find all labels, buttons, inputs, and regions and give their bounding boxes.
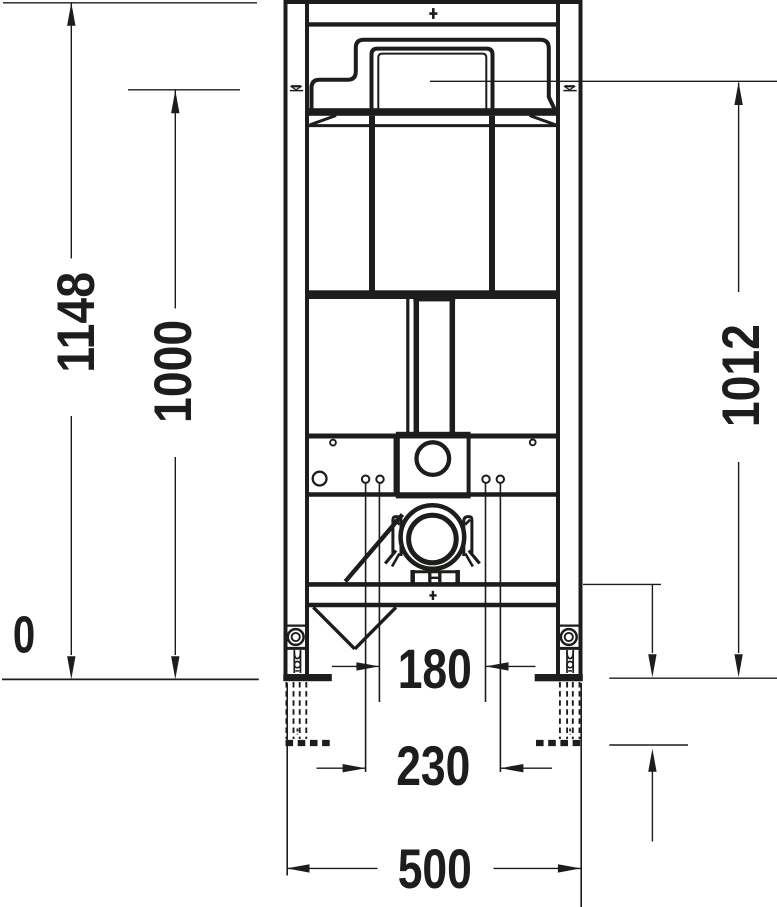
svg-text:1000: 1000	[143, 320, 203, 423]
svg-text:0: 0	[13, 606, 35, 664]
svg-text:230: 230	[396, 734, 470, 797]
svg-text:500: 500	[398, 837, 472, 900]
svg-text:180: 180	[398, 637, 472, 700]
svg-text:1148: 1148	[46, 272, 106, 373]
svg-text:1012: 1012	[711, 324, 771, 427]
